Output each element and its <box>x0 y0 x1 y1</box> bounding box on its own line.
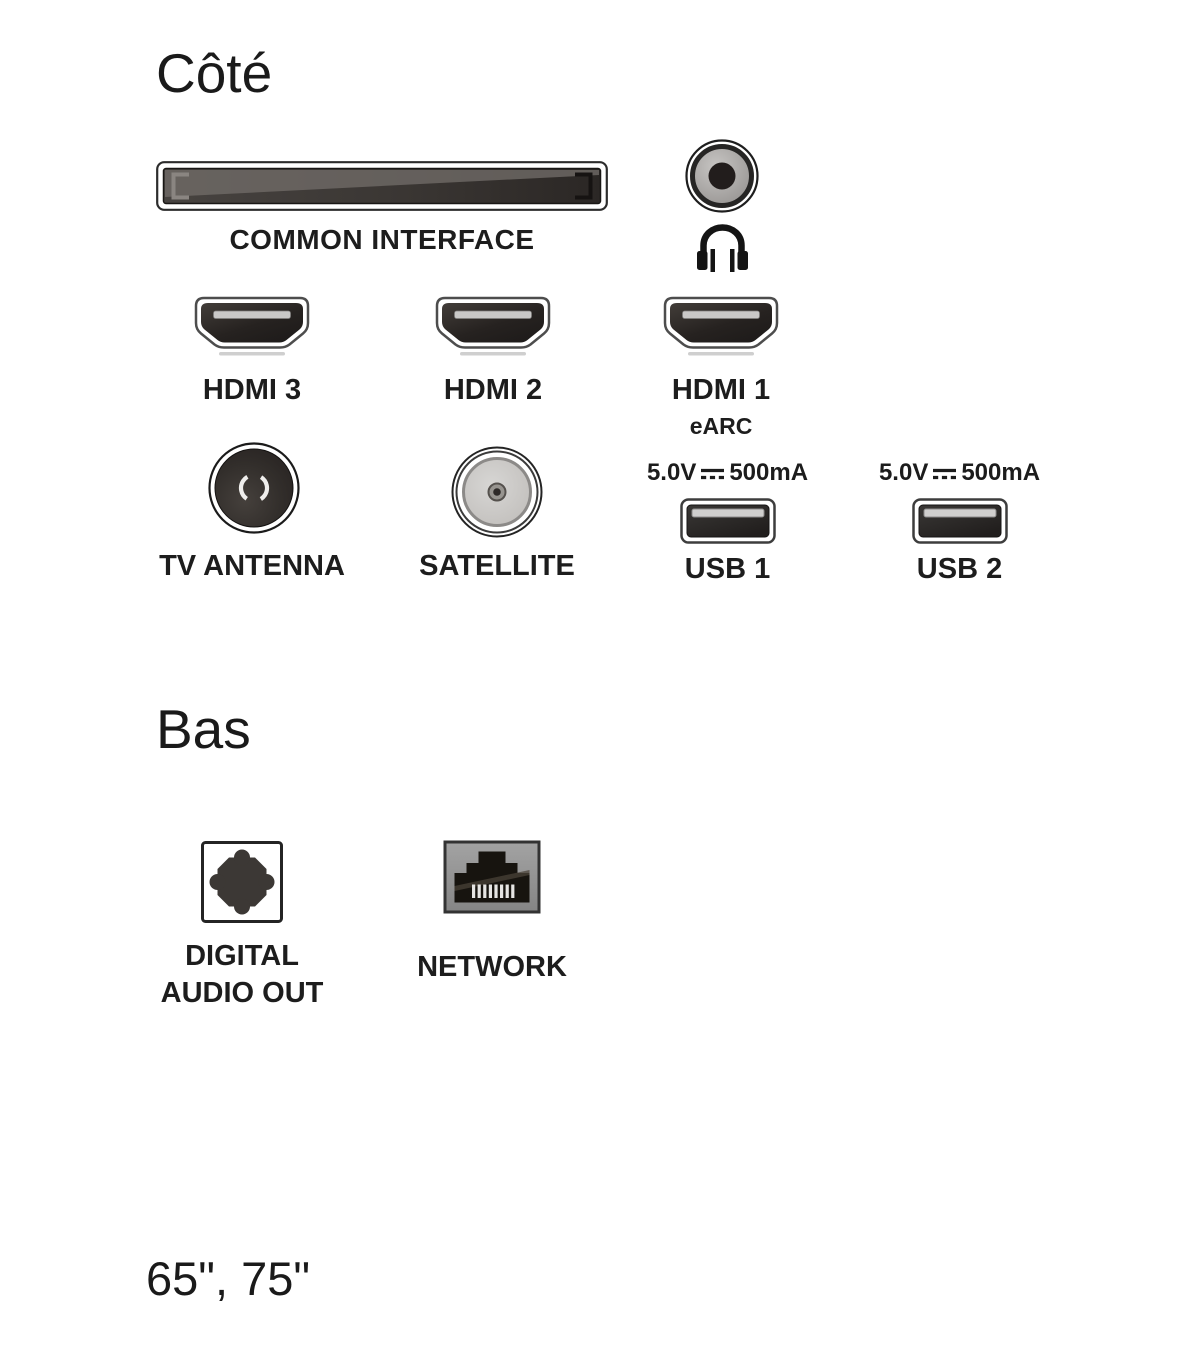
antenna-label: TV ANTENNA <box>142 551 362 583</box>
usb1-power-rating: 5.0V 500mA <box>647 461 808 485</box>
usb2-label: USB 2 <box>917 554 1002 586</box>
digital-audio-out-port: DIGITAL AUDIO OUT <box>150 840 334 1012</box>
usb1-port: 5.0V 500mA USB 1 <box>640 461 815 586</box>
hdmi1-label: HDMI 1 <box>672 375 770 407</box>
usb2-port: 5.0V 500mA USB 2 <box>872 461 1047 586</box>
optical-audio-icon <box>200 840 284 924</box>
common-interface-label: COMMON INTERFACE <box>156 224 608 256</box>
network-port: NETWORK <box>402 840 582 984</box>
dc-power-symbol-icon <box>699 467 726 481</box>
coax-antenna-icon <box>207 441 301 535</box>
digital-audio-out-label: DIGITAL AUDIO OUT <box>161 938 324 1012</box>
hdmi1-port: HDMI 1 eARC <box>646 296 796 440</box>
network-label: NETWORK <box>417 952 567 984</box>
usb1-voltage: 5.0V <box>647 461 696 485</box>
bottom-section-title: Bas <box>156 702 251 757</box>
hdmi-port-icon <box>434 296 552 358</box>
headphone-jack-icon <box>684 138 760 214</box>
hdmi2-port: HDMI 2 <box>418 296 568 407</box>
headphones-icon <box>695 222 750 272</box>
hdmi-port-icon <box>193 296 311 358</box>
usb2-power-rating: 5.0V 500mA <box>879 461 1040 485</box>
rj45-network-icon <box>443 840 541 914</box>
satellite-label: SATELLITE <box>397 551 597 583</box>
hdmi-port-icon <box>662 296 780 358</box>
usb1-current: 500mA <box>729 461 808 485</box>
digital-audio-out-label-line1: DIGITAL <box>161 938 324 975</box>
usb2-current: 500mA <box>961 461 1040 485</box>
satellite-f-connector-icon <box>450 445 544 539</box>
digital-audio-out-label-line2: AUDIO OUT <box>161 975 324 1012</box>
hdmi2-label: HDMI 2 <box>444 375 542 407</box>
usb1-label: USB 1 <box>685 554 770 586</box>
hdmi1-earc-label: eARC <box>690 413 753 440</box>
dc-power-symbol-icon <box>931 467 958 481</box>
hdmi3-label: HDMI 3 <box>203 375 301 407</box>
usb-port-icon <box>680 498 776 544</box>
usb-port-icon <box>912 498 1008 544</box>
hdmi3-port: HDMI 3 <box>177 296 327 407</box>
screen-sizes-label: 65", 75" <box>146 1255 310 1302</box>
usb2-voltage: 5.0V <box>879 461 928 485</box>
side-section-title: Côté <box>156 46 272 101</box>
ci-slot-icon <box>156 161 608 211</box>
connection-diagram: Côté COMMON INTERFACE <box>0 0 1200 1372</box>
